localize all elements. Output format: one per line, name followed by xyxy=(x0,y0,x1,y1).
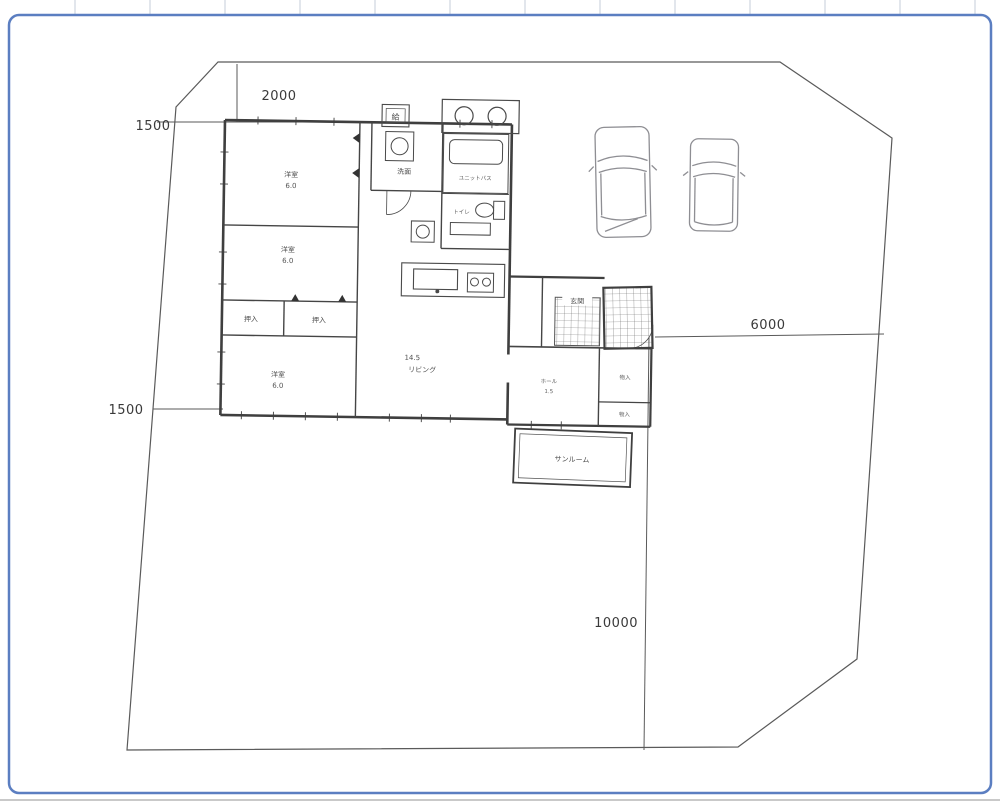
storage-lower-label: 物入 xyxy=(619,410,631,418)
house: 給 玄関 サンルーム 洋室 6.0 洋室 6.0 洋室 6.0 押入 押入 14… xyxy=(215,96,656,487)
dim-label-2000: 2000 xyxy=(261,89,296,104)
living-area: 14.5 xyxy=(404,354,420,362)
bedroom2-area: 6.0 xyxy=(282,257,293,265)
sunroom-label: サンルーム xyxy=(554,455,589,464)
dimension-top-2000: 2000 xyxy=(157,64,357,122)
closet-right-label: 押入 xyxy=(312,315,326,324)
dim-label-1500-lower: 1500 xyxy=(108,403,143,418)
storage-upper-label: 物入 xyxy=(619,373,631,381)
door-triangles xyxy=(291,132,360,302)
dimension-right-6000: 6000 xyxy=(655,318,884,337)
bedroom3-area: 6.0 xyxy=(272,382,283,390)
car-small xyxy=(682,139,745,232)
dimension-left-lower-1500: 1500 xyxy=(108,403,223,418)
entrance-label: 玄関 xyxy=(570,296,584,305)
hall-area: 1.5 xyxy=(544,389,553,395)
dim-label-1500-upper: 1500 xyxy=(135,119,170,134)
living-label: リビング xyxy=(408,365,436,374)
sunroom: サンルーム xyxy=(513,429,632,487)
dimension-bottom-10000: 10000 xyxy=(594,337,649,750)
bath-label: ユニットバス xyxy=(459,175,492,183)
sheet-gridlines xyxy=(75,0,975,14)
vanity-counter xyxy=(450,223,490,236)
bedroom1-label: 洋室 xyxy=(284,170,298,179)
site-boundary xyxy=(127,62,892,750)
hall-label: ホール xyxy=(541,378,558,385)
washroom-label: 洗面 xyxy=(397,167,411,176)
closet-left-label: 押入 xyxy=(244,314,258,323)
door-arc-washroom xyxy=(387,191,411,215)
gas-stove xyxy=(467,273,493,292)
dim-label-6000: 6000 xyxy=(750,318,785,333)
bedroom1-area: 6.0 xyxy=(285,182,296,190)
bedroom3-label: 洋室 xyxy=(271,370,285,379)
plan-canvas: 2000 1500 1500 6000 10000 xyxy=(0,0,1000,802)
water-heater-label: 給 xyxy=(391,112,399,122)
window-ticks xyxy=(216,116,566,429)
wash-basin xyxy=(411,221,434,242)
walls-interior xyxy=(220,120,655,427)
washing-machine xyxy=(385,132,413,161)
bathtub xyxy=(443,133,509,193)
porch-tile-hatch xyxy=(603,287,652,349)
dim-label-10000: 10000 xyxy=(594,616,638,631)
car-large xyxy=(588,126,658,237)
toilet-label: トイレ xyxy=(453,210,470,216)
bedroom2-label: 洋室 xyxy=(281,245,295,254)
septic-tank xyxy=(442,99,520,133)
walls-outer xyxy=(220,120,655,427)
scanned-page: 2000 1500 1500 6000 10000 xyxy=(0,0,1000,802)
toilet xyxy=(475,201,504,219)
dimension-left-upper-1500: 1500 xyxy=(135,119,170,134)
